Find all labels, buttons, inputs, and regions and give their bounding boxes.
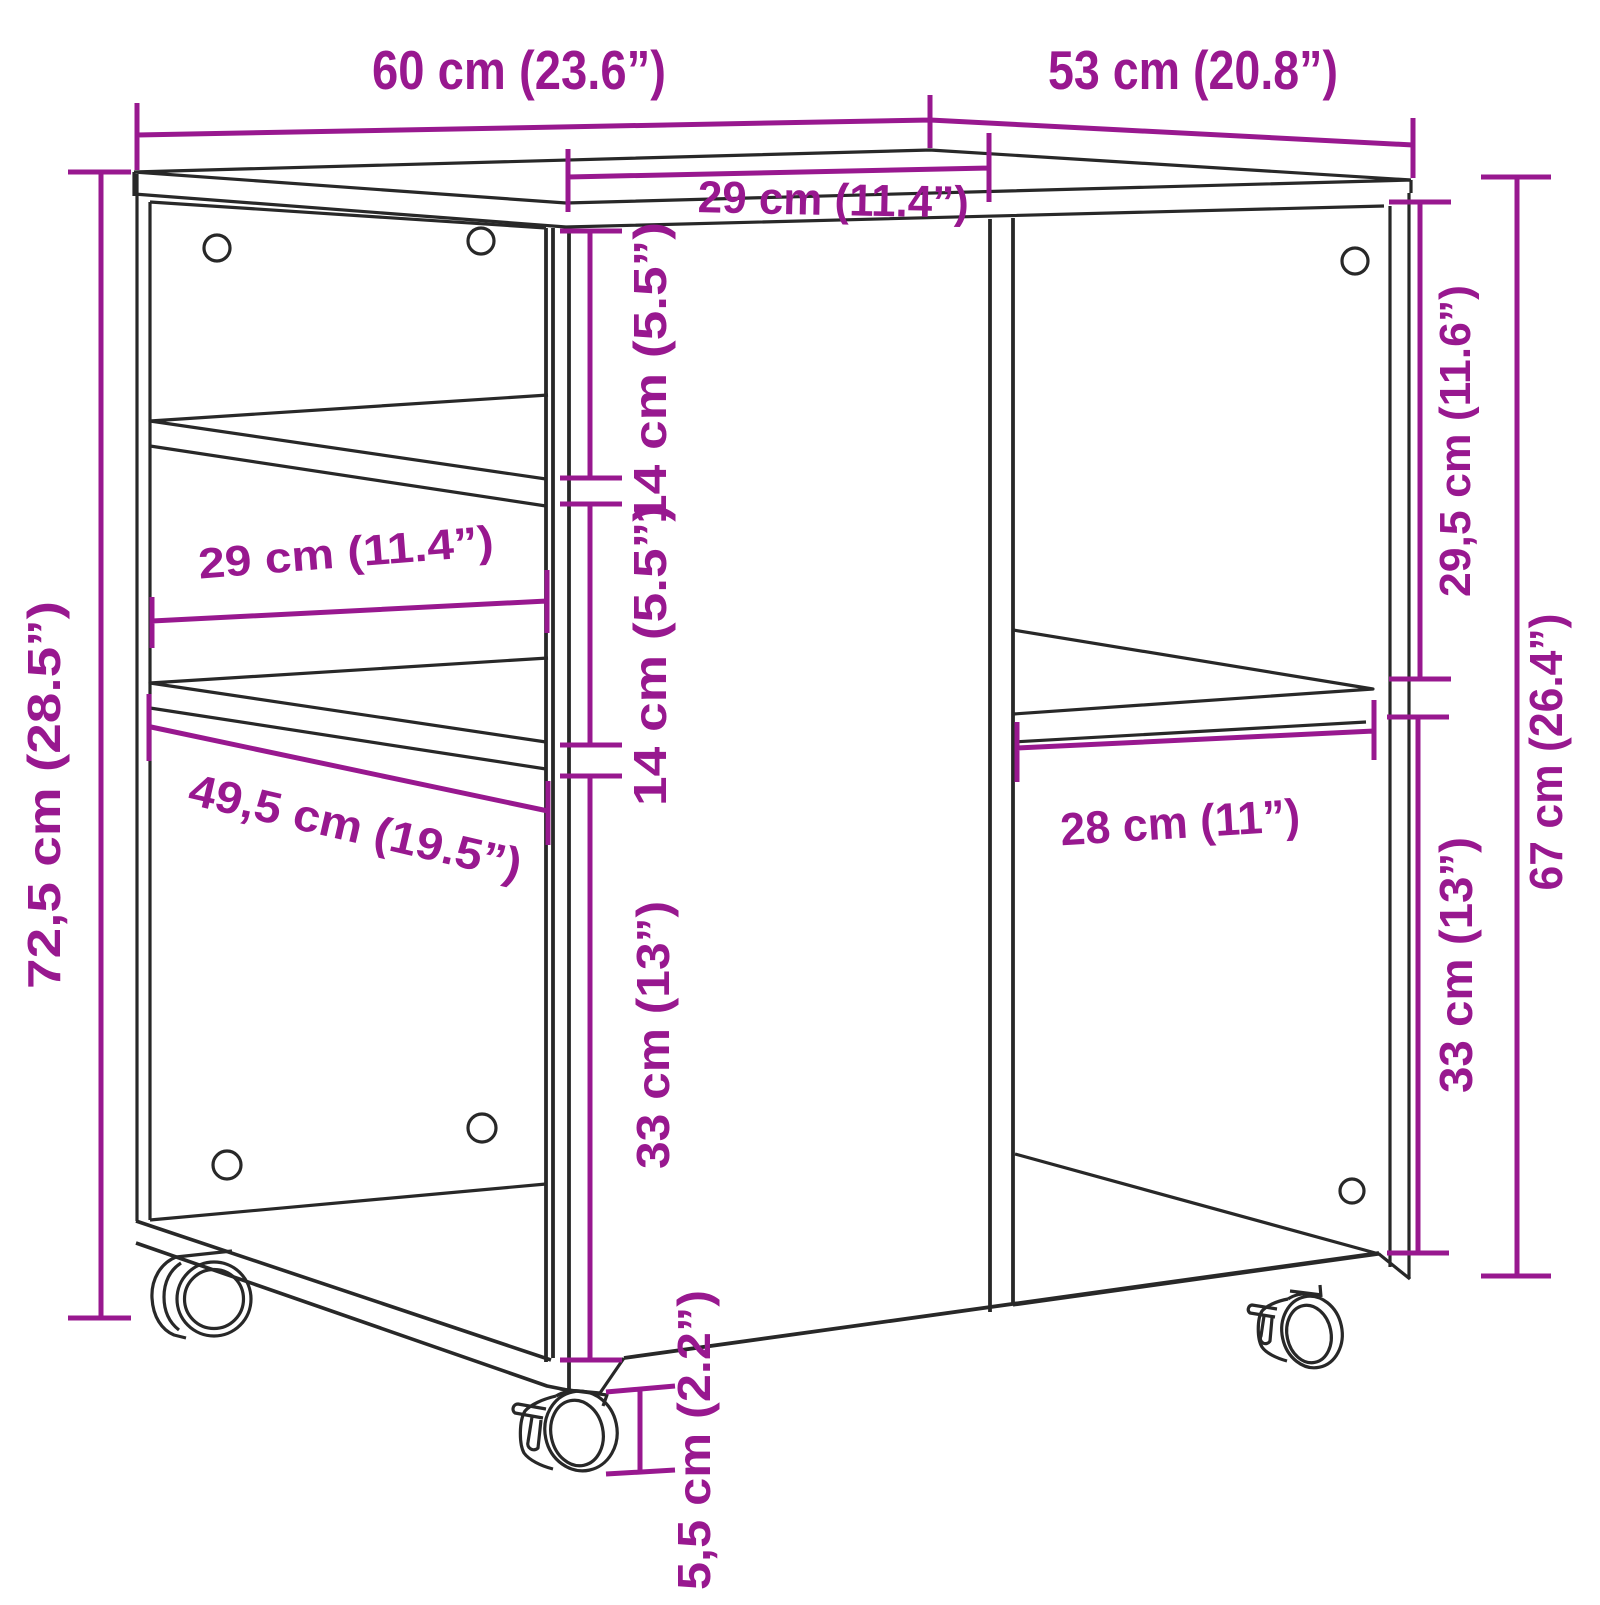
svg-text:53 cm (20.8”): 53 cm (20.8”) [1048, 39, 1338, 101]
svg-text:14 cm (5.5”): 14 cm (5.5”) [624, 222, 676, 524]
svg-text:5,5 cm (2.2”): 5,5 cm (2.2”) [668, 1290, 720, 1590]
svg-text:49,5 cm (19.5”): 49,5 cm (19.5”) [184, 764, 527, 890]
svg-text:28 cm (11”): 28 cm (11”) [1059, 789, 1302, 856]
svg-text:67 cm (26.4”): 67 cm (26.4”) [1520, 614, 1572, 891]
svg-text:29,5 cm (11.6”): 29,5 cm (11.6”) [1431, 285, 1480, 597]
svg-text:60 cm (23.6”): 60 cm (23.6”) [372, 39, 666, 101]
svg-text:14 cm (5.5”): 14 cm (5.5”) [624, 504, 676, 806]
svg-text:33 cm (13”): 33 cm (13”) [1430, 837, 1482, 1093]
svg-text:29 cm (11.4”): 29 cm (11.4”) [697, 171, 969, 228]
svg-text:33 cm (13”): 33 cm (13”) [627, 901, 679, 1169]
svg-text:29 cm (11.4”): 29 cm (11.4”) [196, 518, 495, 589]
svg-text:72,5 cm (28.5”): 72,5 cm (28.5”) [18, 601, 70, 989]
